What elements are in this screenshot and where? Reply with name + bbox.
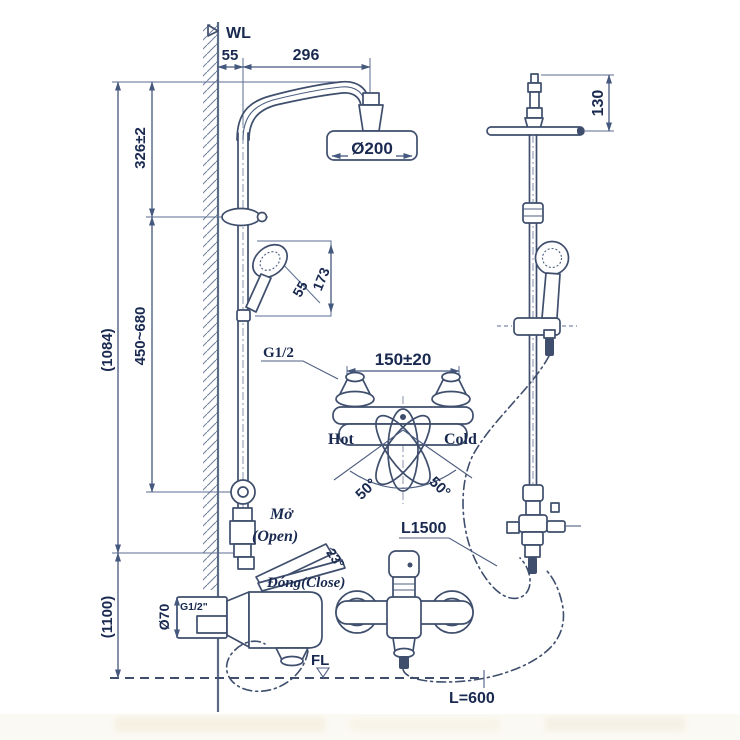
drawing-canvas: WL 326±2 450~680 (1084) (1100) 55 296 bbox=[0, 0, 740, 740]
upper-wall-bracket bbox=[222, 209, 260, 226]
spout-hose bbox=[403, 570, 564, 682]
dim-mixer-height: (1100) bbox=[99, 596, 116, 639]
mixer-top-view: 150±20 G1/2 Hot Cold 50° 50° bbox=[261, 345, 477, 504]
wall-hatching bbox=[203, 24, 218, 590]
hand-shower-handle bbox=[246, 274, 271, 312]
mixer-side-view: G1/2" Ø70 23° Mở (Open) Đóng(Close) FL bbox=[156, 506, 347, 691]
dim-hand-shower-width: 55 bbox=[289, 278, 311, 300]
dim-slide-range: 450~680 bbox=[132, 307, 149, 366]
rain-head-side bbox=[487, 127, 584, 135]
dim-flange-diameter: Ø70 bbox=[156, 604, 172, 631]
check-valve bbox=[507, 501, 581, 574]
mixer-body-side bbox=[249, 592, 322, 648]
side-view-shower-column: 130 L1500 bbox=[399, 74, 614, 598]
label-close: Đóng(Close) bbox=[266, 575, 345, 591]
label-open-vi: Mở bbox=[269, 506, 294, 523]
hot-inlet bbox=[336, 373, 374, 407]
label-hose-length: L1500 bbox=[401, 520, 446, 537]
bottom-blur-band bbox=[0, 714, 740, 740]
technical-drawing: WL 326±2 450~680 (1084) (1100) 55 296 bbox=[0, 0, 740, 740]
front-view-shower-column: Ø200 bbox=[222, 82, 417, 565]
label-hot: Hot bbox=[328, 431, 354, 448]
hand-shower-front: 173 55 bbox=[237, 238, 333, 321]
dim-arm-reach: 296 bbox=[293, 47, 320, 64]
floor-level-marker-icon bbox=[317, 668, 329, 677]
dim-arm-drop: 326±2 bbox=[132, 127, 149, 169]
pipe-union bbox=[523, 203, 543, 223]
cold-inlet bbox=[432, 373, 470, 407]
eccentric-connector bbox=[227, 592, 249, 647]
label-spout-hose-length: L=600 bbox=[449, 690, 495, 707]
top-dimensions: 55 296 bbox=[218, 47, 370, 125]
dim-head-height: 130 bbox=[590, 90, 607, 117]
label-open-en: (Open) bbox=[252, 528, 298, 545]
wall-line-label: WL bbox=[226, 25, 251, 42]
label-thread-top: G1/2 bbox=[263, 345, 294, 361]
dim-head-diameter: Ø200 bbox=[351, 139, 393, 158]
floor-line-label: FL bbox=[311, 652, 329, 669]
hose-connector bbox=[399, 656, 409, 669]
dim-bar-height: (1084) bbox=[99, 328, 116, 371]
mixer-handle-front bbox=[389, 551, 419, 578]
dim-wall-offset: 55 bbox=[222, 47, 239, 64]
dim-inlet-pitch: 150±20 bbox=[375, 350, 432, 369]
thread-size-label: G1/2" bbox=[180, 601, 208, 613]
dim-hand-shower-length: 173 bbox=[309, 265, 333, 293]
slider-holder bbox=[231, 480, 255, 504]
head-ball-joint bbox=[363, 93, 379, 105]
hand-shower-side bbox=[536, 242, 569, 275]
label-cold: Cold bbox=[444, 431, 477, 448]
